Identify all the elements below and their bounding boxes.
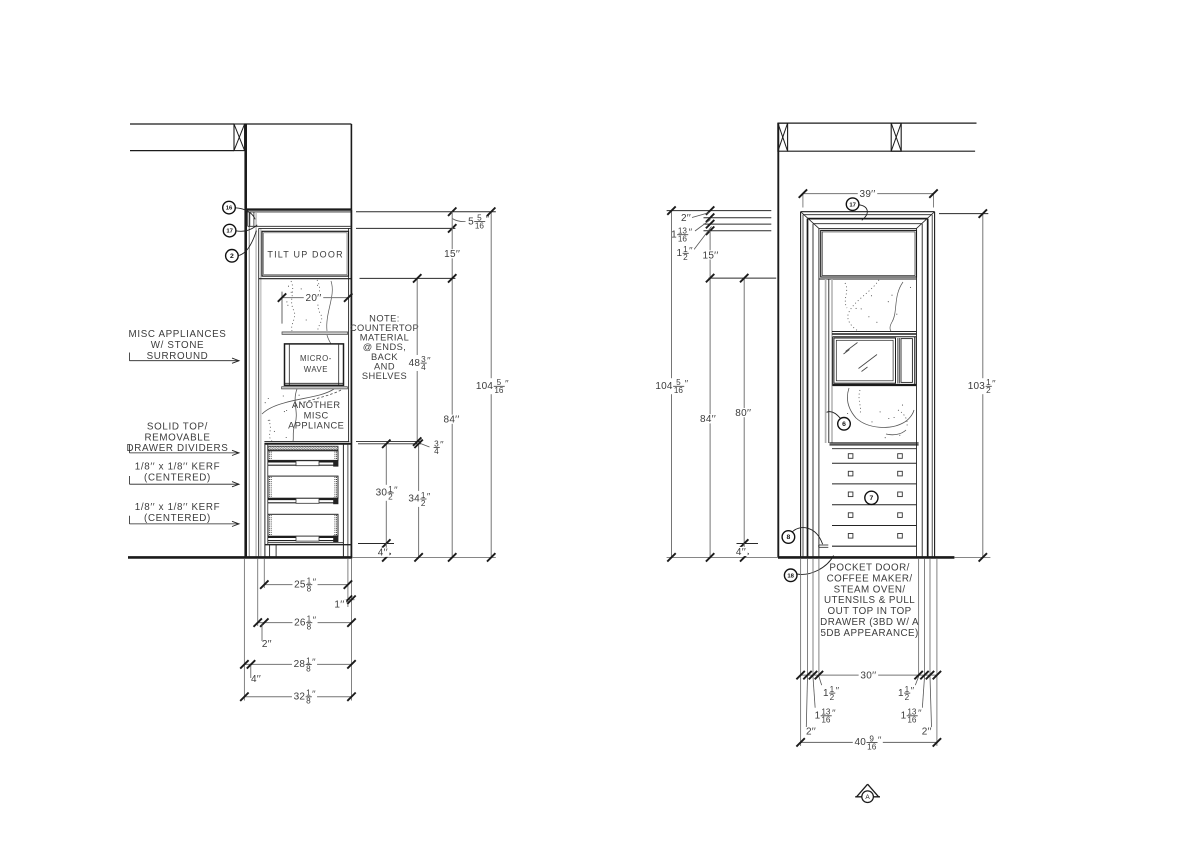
svg-text:104: 104: [655, 381, 673, 392]
svg-text:2: 2: [986, 386, 991, 395]
svg-text:16: 16: [674, 386, 684, 395]
svg-text:′′: ′′: [313, 577, 317, 587]
svg-text:′′: ′′: [312, 689, 316, 699]
svg-text:MICRO-: MICRO-: [300, 354, 332, 363]
svg-text:2′′: 2′′: [681, 213, 691, 224]
svg-text:16: 16: [494, 386, 504, 395]
svg-text:30′′: 30′′: [860, 671, 876, 682]
svg-text:8: 8: [307, 623, 312, 632]
svg-text:1′′: 1′′: [334, 599, 344, 610]
svg-text:′′: ′′: [918, 708, 922, 718]
svg-text:1: 1: [901, 711, 907, 722]
svg-text:16: 16: [867, 742, 877, 751]
svg-text:′′: ′′: [832, 708, 836, 718]
svg-text:SOLID TOP/: SOLID TOP/: [147, 422, 208, 433]
svg-text:4′′: 4′′: [736, 547, 746, 558]
svg-text:1/8′′ x 1/8′′ KERF: 1/8′′ x 1/8′′ KERF: [135, 502, 220, 513]
svg-text:TILT UP DOOR: TILT UP DOOR: [267, 250, 343, 260]
svg-text:′′: ′′: [911, 685, 915, 695]
svg-text:16: 16: [226, 206, 233, 212]
svg-text:84′′: 84′′: [443, 415, 459, 426]
svg-text:BACK: BACK: [371, 352, 398, 362]
svg-text:20′′: 20′′: [305, 293, 321, 304]
svg-text:15′′: 15′′: [444, 249, 460, 260]
svg-text:26: 26: [294, 617, 306, 628]
svg-text:1/8′′ x 1/8′′ KERF: 1/8′′ x 1/8′′ KERF: [135, 461, 220, 472]
svg-text:15′′: 15′′: [702, 250, 718, 261]
svg-text:84′′: 84′′: [700, 414, 716, 425]
svg-text:COUNTERTOP: COUNTERTOP: [350, 323, 419, 333]
svg-text:′′: ′′: [427, 491, 431, 501]
svg-text:′′: ′′: [878, 735, 882, 745]
svg-text:5: 5: [468, 216, 474, 227]
svg-text:1: 1: [677, 248, 683, 259]
svg-text:4′′: 4′′: [251, 674, 261, 685]
svg-text:2′′: 2′′: [262, 639, 272, 650]
svg-text:40: 40: [855, 737, 867, 748]
svg-text:4: 4: [434, 447, 439, 456]
svg-text:APPLIANCE: APPLIANCE: [288, 421, 344, 431]
svg-text:6: 6: [842, 421, 846, 428]
svg-text:MISC APPLIANCES: MISC APPLIANCES: [129, 329, 227, 340]
svg-text:′′: ′′: [313, 615, 317, 625]
svg-text:′′: ′′: [689, 246, 693, 256]
svg-text:2: 2: [905, 693, 910, 702]
svg-text:16: 16: [821, 716, 831, 725]
svg-text:18: 18: [787, 573, 794, 579]
svg-text:SURROUND: SURROUND: [147, 351, 209, 362]
svg-text:ANOTHER: ANOTHER: [292, 400, 341, 410]
svg-text:80′′: 80′′: [735, 408, 751, 419]
svg-text:W/ STONE: W/ STONE: [151, 340, 204, 351]
svg-text:28: 28: [294, 659, 306, 670]
svg-text:39′′: 39′′: [859, 189, 875, 200]
svg-text:2: 2: [388, 493, 393, 502]
svg-text:30: 30: [376, 488, 388, 499]
svg-text:STEAM OVEN/: STEAM OVEN/: [834, 584, 906, 595]
svg-text:A: A: [865, 794, 870, 801]
svg-text:2′′: 2′′: [806, 727, 816, 738]
svg-text:′′: ′′: [505, 379, 509, 389]
svg-text:UTENSILS & PULL: UTENSILS & PULL: [824, 595, 915, 606]
svg-text:2: 2: [230, 253, 234, 260]
svg-text:1: 1: [898, 688, 904, 699]
svg-text:COFFEE MAKER/: COFFEE MAKER/: [827, 573, 913, 584]
svg-text:17: 17: [849, 202, 856, 208]
svg-text:DRAWER DIVIDERS: DRAWER DIVIDERS: [127, 443, 229, 454]
svg-text:7: 7: [870, 495, 874, 502]
svg-text:MISC: MISC: [304, 410, 329, 420]
svg-text:2: 2: [421, 499, 426, 508]
svg-text:(CENTERED): (CENTERED): [144, 513, 211, 524]
svg-text:8: 8: [787, 534, 791, 541]
svg-text:25: 25: [294, 579, 306, 590]
svg-text:103: 103: [968, 381, 986, 392]
svg-text:′′: ′′: [685, 379, 689, 389]
svg-text:@ ENDS,: @ ENDS,: [363, 342, 407, 352]
svg-text:2: 2: [830, 693, 835, 702]
svg-text:104: 104: [476, 381, 494, 392]
svg-text:5DB APPEARANCE): 5DB APPEARANCE): [820, 628, 918, 639]
svg-text:′′: ′′: [992, 379, 996, 389]
svg-text:′′: ′′: [427, 355, 431, 365]
svg-text:AND: AND: [374, 361, 395, 371]
svg-text:16: 16: [678, 235, 688, 244]
svg-text:2′′: 2′′: [922, 727, 932, 738]
svg-text:SHELVES: SHELVES: [362, 371, 407, 381]
svg-text:32: 32: [294, 692, 306, 703]
svg-text:1: 1: [815, 711, 821, 722]
svg-text:′′: ′′: [440, 440, 444, 450]
svg-text:16: 16: [907, 716, 917, 725]
svg-text:DRAWER (3BD W/ A: DRAWER (3BD W/ A: [820, 617, 919, 628]
svg-text:POCKET DOOR/: POCKET DOOR/: [829, 563, 909, 574]
svg-text:NOTE:: NOTE:: [369, 313, 400, 323]
svg-text:4′′: 4′′: [378, 548, 388, 559]
svg-text:1: 1: [823, 688, 829, 699]
svg-text:4: 4: [421, 363, 426, 372]
svg-text:′′: ′′: [394, 485, 398, 495]
svg-text:17: 17: [226, 229, 233, 235]
svg-text:WAVE: WAVE: [304, 365, 328, 374]
svg-text:8: 8: [307, 585, 312, 594]
svg-text:REMOVABLE: REMOVABLE: [144, 432, 210, 443]
svg-text:′′: ′′: [689, 227, 693, 237]
svg-text:48: 48: [409, 358, 421, 369]
svg-text:34: 34: [408, 494, 420, 505]
svg-text:′′: ′′: [312, 657, 316, 667]
svg-text:2: 2: [683, 253, 688, 262]
svg-text:8: 8: [306, 697, 311, 706]
svg-text:8: 8: [306, 664, 311, 673]
svg-text:OUT TOP IN TOP: OUT TOP IN TOP: [828, 606, 912, 617]
svg-text:MATERIAL: MATERIAL: [360, 333, 409, 343]
svg-text:16: 16: [475, 221, 485, 230]
svg-text:(CENTERED): (CENTERED): [144, 472, 211, 483]
svg-text:′′: ′′: [836, 685, 840, 695]
